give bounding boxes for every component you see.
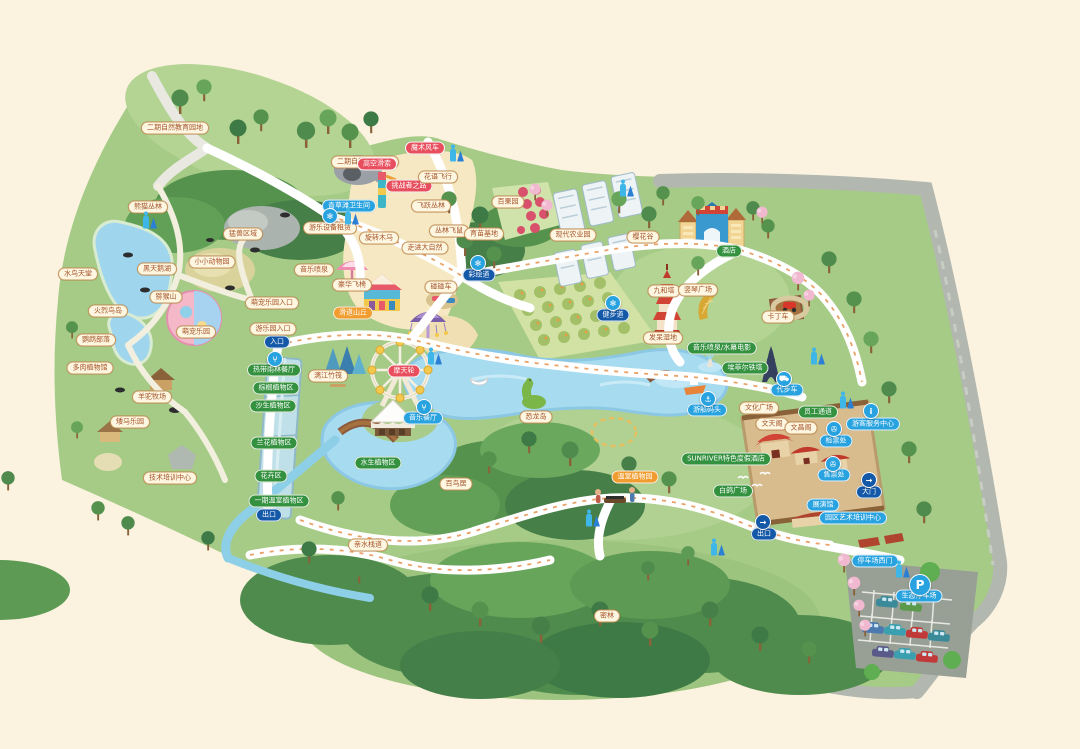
park-map-illustration xyxy=(0,0,1080,749)
park-map: 二期自然教育园地二期自然教育园地熊猫丛林猛兽区域小小动物园水鸟天堂黑天鹅湖猕猴山… xyxy=(0,0,1080,749)
